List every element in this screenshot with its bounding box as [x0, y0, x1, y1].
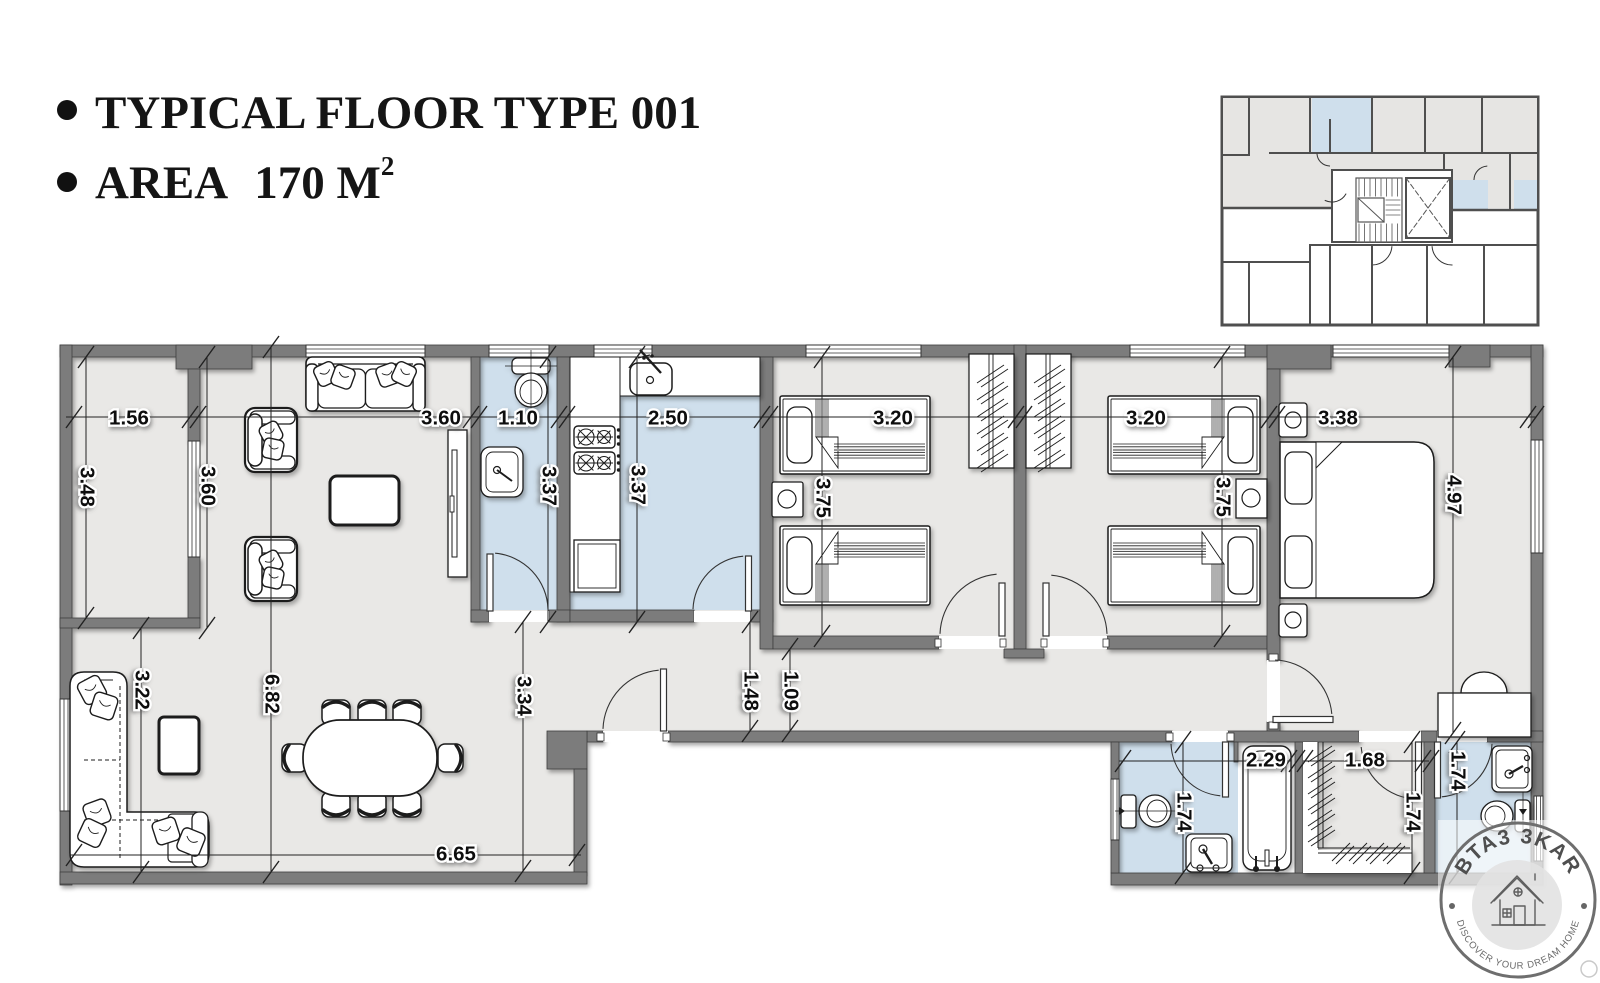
svg-text:1.56: 1.56: [109, 406, 149, 429]
svg-text:1.74: 1.74: [1402, 792, 1425, 832]
svg-text:1.10: 1.10: [498, 406, 538, 429]
svg-text:3.75: 3.75: [812, 478, 835, 518]
svg-text:2.50: 2.50: [648, 406, 688, 429]
svg-text:2.29: 2.29: [1246, 748, 1286, 771]
svg-text:6.65: 6.65: [436, 842, 476, 865]
svg-text:3.22: 3.22: [131, 670, 154, 710]
svg-text:3.75: 3.75: [1212, 477, 1235, 517]
svg-text:1.48: 1.48: [740, 671, 763, 711]
svg-text:TYPICAL FLOOR TYPE 001: TYPICAL FLOOR TYPE 001: [95, 87, 701, 139]
svg-text:3.20: 3.20: [873, 406, 913, 429]
svg-text:4.97: 4.97: [1443, 475, 1466, 515]
svg-text:1.74: 1.74: [1173, 792, 1196, 832]
svg-text:3.48: 3.48: [76, 467, 99, 507]
svg-text:3.60: 3.60: [421, 406, 461, 429]
svg-text:3.60: 3.60: [197, 466, 220, 506]
svg-text:1.68: 1.68: [1345, 748, 1385, 771]
svg-text:1.09: 1.09: [780, 671, 803, 711]
svg-text:1.74: 1.74: [1447, 751, 1470, 791]
svg-text:3.20: 3.20: [1126, 406, 1166, 429]
svg-text:3.37: 3.37: [627, 465, 650, 505]
svg-text:3.37: 3.37: [538, 466, 561, 506]
svg-text:6.82: 6.82: [261, 674, 284, 714]
svg-text:3.34: 3.34: [513, 676, 536, 716]
svg-text:3.38: 3.38: [1318, 406, 1358, 429]
